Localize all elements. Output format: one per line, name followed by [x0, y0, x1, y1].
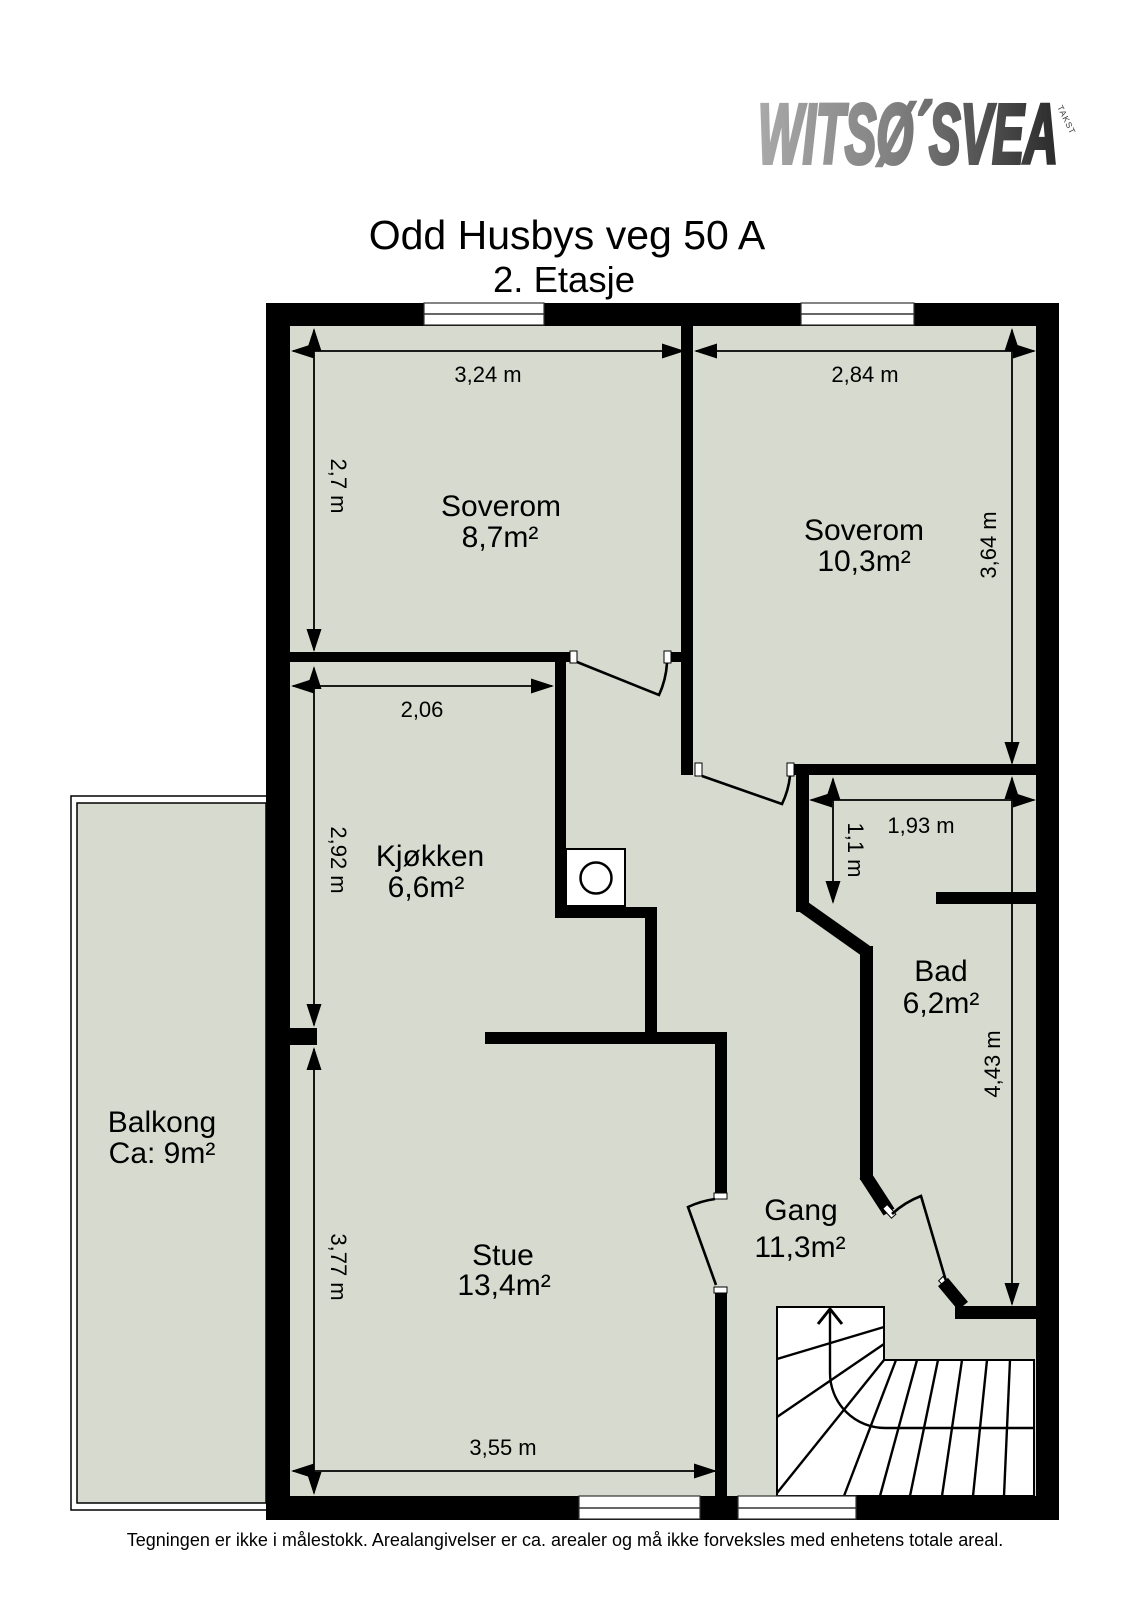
svg-text:1,93 m: 1,93 m: [887, 813, 954, 838]
svg-text:6,6m²: 6,6m²: [388, 871, 465, 904]
svg-text:13,4m²: 13,4m²: [457, 1269, 550, 1302]
svg-text:4,43 m: 4,43 m: [980, 1030, 1005, 1097]
svg-text:6,2m²: 6,2m²: [903, 987, 980, 1020]
svg-text:3,64 m: 3,64 m: [976, 511, 1001, 578]
svg-text:Soverom: Soverom: [441, 490, 561, 523]
svg-text:3,77 m: 3,77 m: [326, 1233, 351, 1300]
svg-text:Bad: Bad: [914, 955, 967, 988]
svg-text:2,92 m: 2,92 m: [326, 826, 351, 893]
svg-text:Gang: Gang: [764, 1194, 837, 1227]
svg-text:8,7m²: 8,7m²: [462, 521, 539, 554]
svg-text:Tegningen er ikke i målestokk.: Tegningen er ikke i målestokk. Arealangi…: [127, 1530, 1003, 1550]
svg-text:Kjøkken: Kjøkken: [376, 840, 484, 873]
svg-text:Odd Husbys veg 50 A: Odd Husbys veg 50 A: [369, 212, 766, 258]
svg-text:2,06: 2,06: [401, 697, 444, 722]
svg-text:2,7 m: 2,7 m: [326, 458, 351, 513]
svg-text:3,24 m: 3,24 m: [454, 362, 521, 387]
svg-text:11,3m²: 11,3m²: [754, 1231, 845, 1264]
svg-text:1,1 m: 1,1 m: [843, 822, 868, 877]
svg-text:Balkong: Balkong: [108, 1106, 216, 1139]
svg-text:Soverom: Soverom: [804, 514, 924, 547]
svg-text:WITSØ´SVEA: WITSØ´SVEA: [758, 87, 1058, 181]
svg-text:10,3m²: 10,3m²: [817, 545, 910, 578]
svg-text:2. Etasje: 2. Etasje: [493, 259, 635, 300]
svg-text:Stue: Stue: [472, 1239, 534, 1272]
svg-text:Ca: 9m²: Ca: 9m²: [109, 1137, 216, 1170]
svg-text:2,84 m: 2,84 m: [831, 362, 898, 387]
svg-text:3,55 m: 3,55 m: [469, 1435, 536, 1460]
